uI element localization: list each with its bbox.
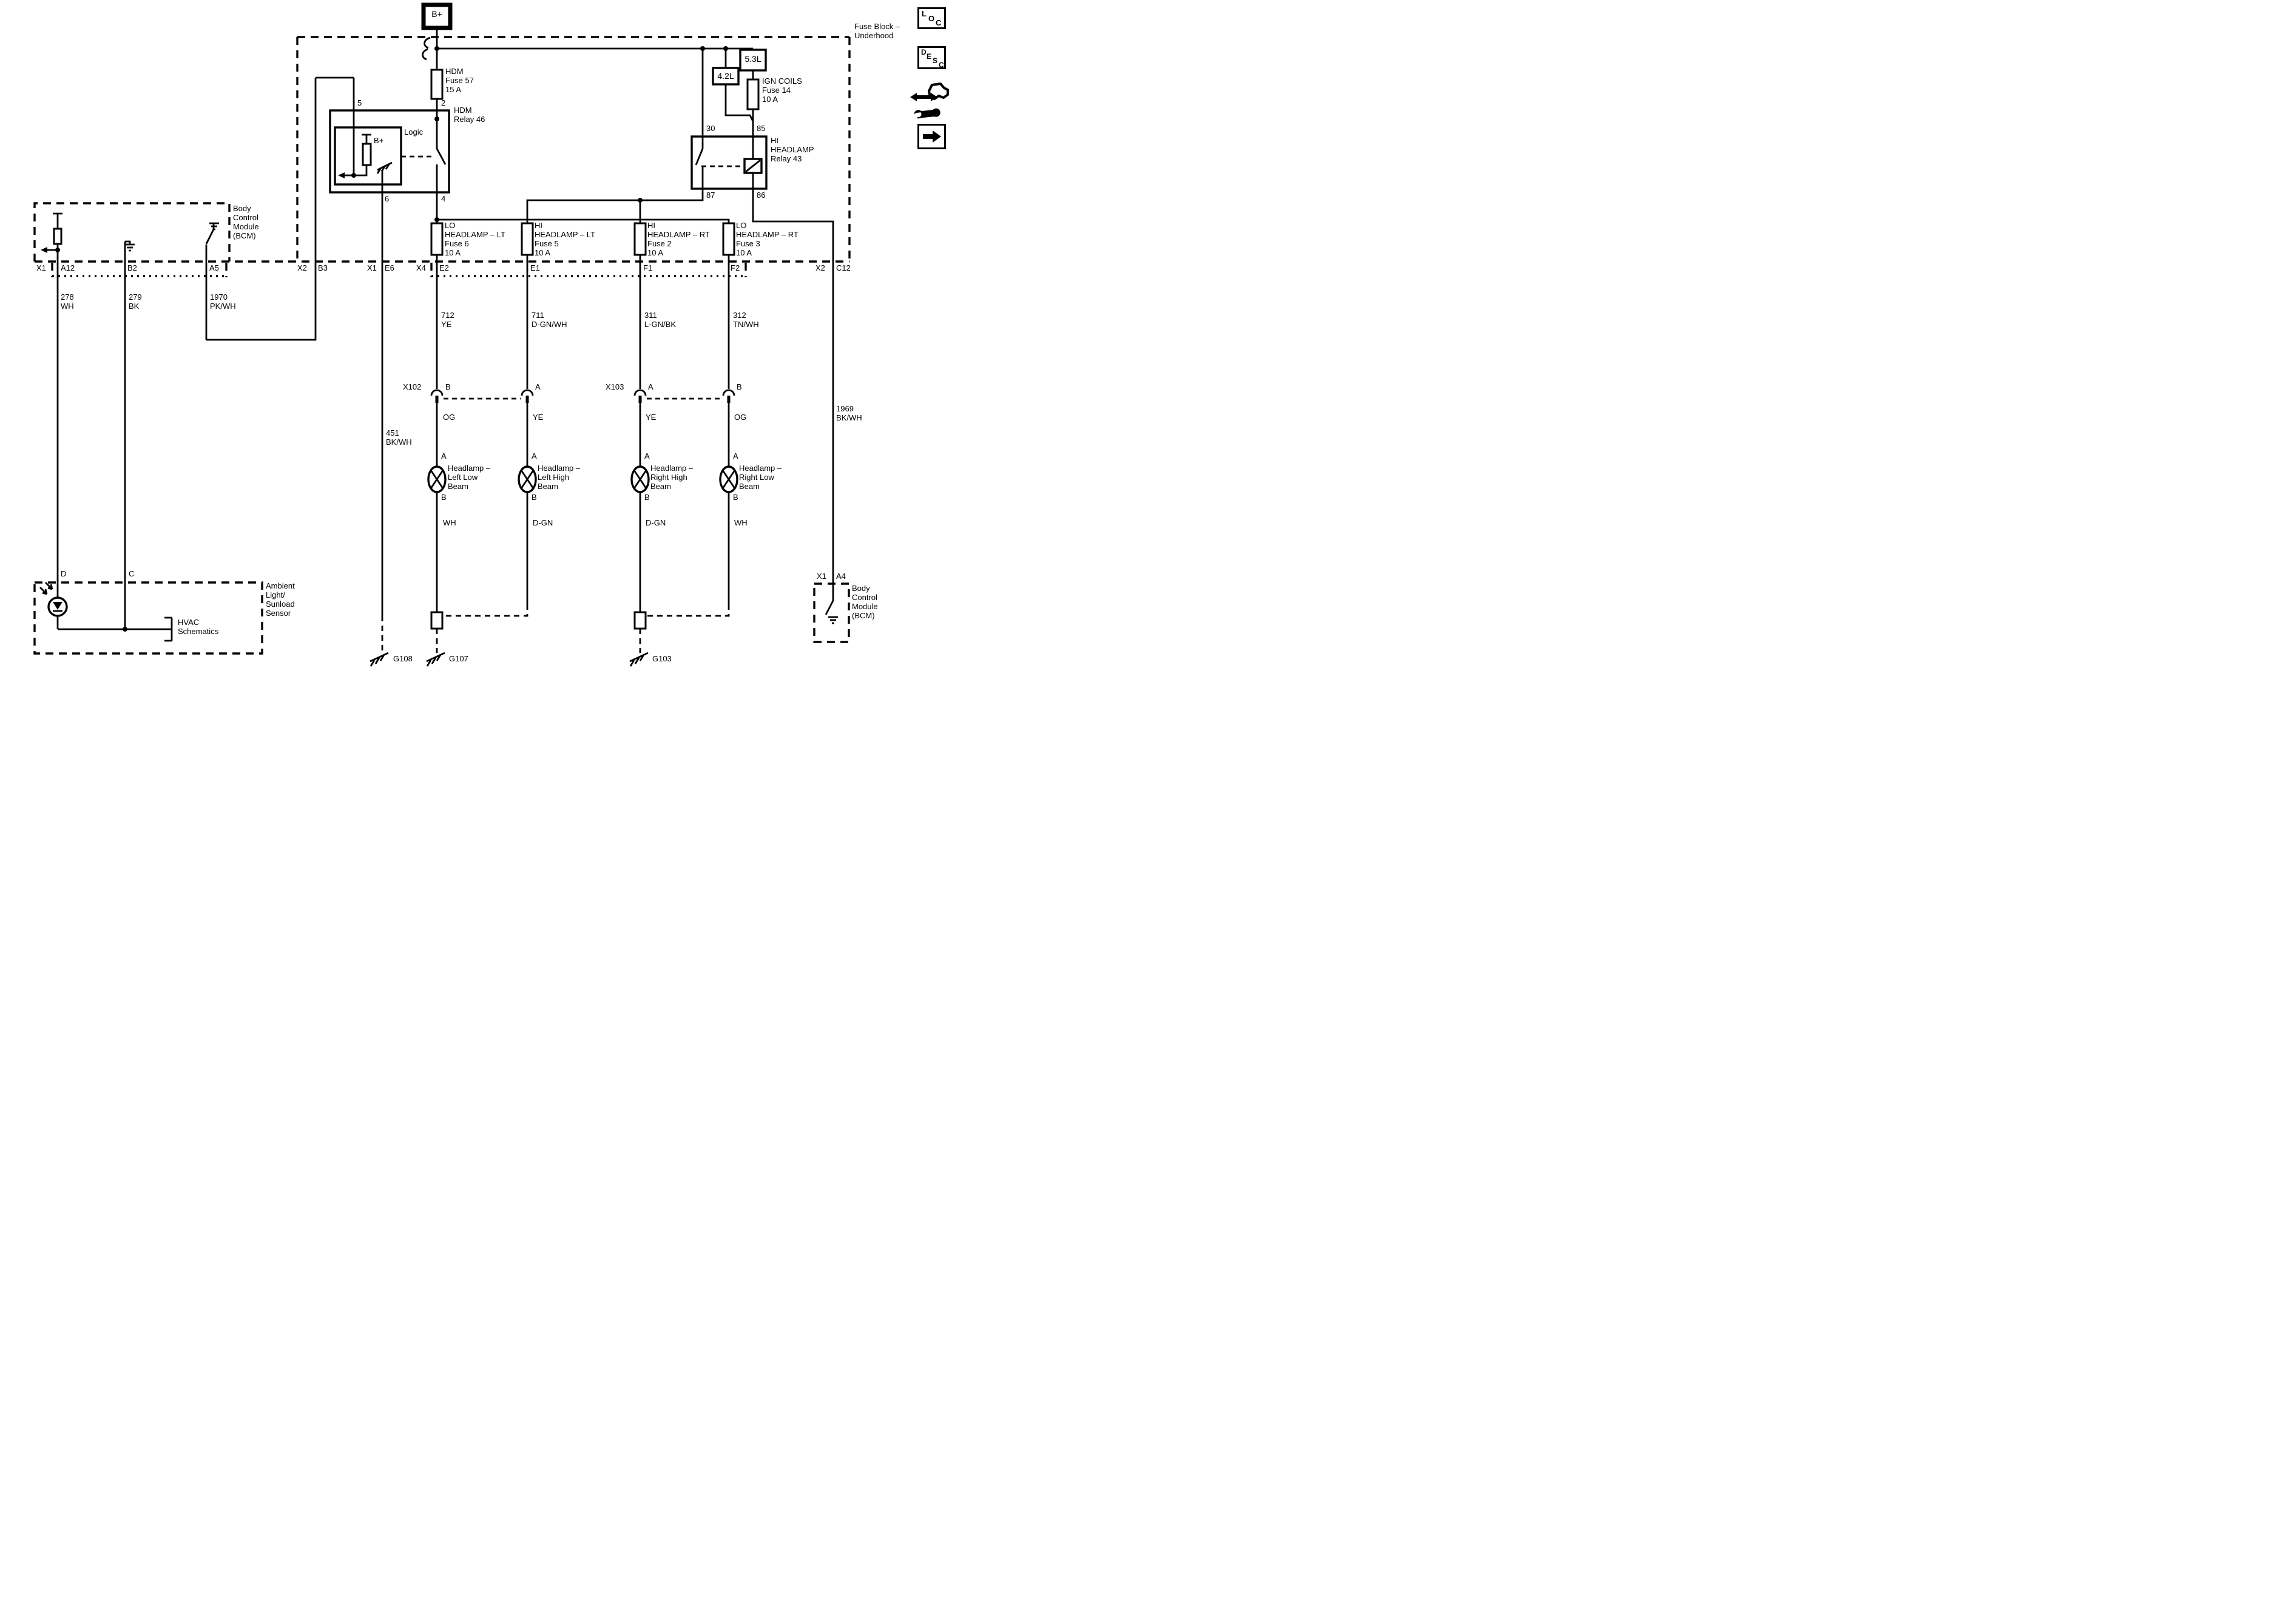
wire-312-tnwh: 312 TN/WH bbox=[733, 311, 759, 329]
relay43-pin85: 85 bbox=[757, 124, 765, 133]
bcm-left-label: Body Control Module (BCM) bbox=[233, 204, 259, 240]
lamp2-wire-color-bottom: D-GN bbox=[533, 518, 553, 527]
ground-g107-icon bbox=[427, 653, 445, 666]
desc-letter-c: C bbox=[939, 61, 944, 69]
x103-pin-a: A bbox=[648, 382, 653, 391]
lamp1-pin-b: B bbox=[441, 493, 447, 502]
x102-pin-b: B bbox=[445, 382, 451, 391]
fuse-hi-lt-label: HI HEADLAMP – LT Fuse 5 10 A bbox=[535, 221, 595, 257]
sensor-pin-d: D bbox=[61, 569, 66, 578]
location-button[interactable]: L O C bbox=[917, 7, 946, 29]
relay-bplus-label: B+ bbox=[374, 136, 383, 145]
bcm-left-box bbox=[35, 203, 229, 262]
bcm-right-internals bbox=[826, 584, 838, 623]
inline-connector-x102 bbox=[431, 390, 533, 403]
lamp4-name: Headlamp – Right Low Beam bbox=[739, 464, 782, 491]
fuse-hi-rt-label: HI HEADLAMP – RT Fuse 2 10 A bbox=[647, 221, 710, 257]
relay46-pin4: 4 bbox=[441, 194, 445, 203]
conn-a5: A5 bbox=[209, 263, 219, 272]
ground-splices bbox=[431, 604, 729, 653]
wire-712-ye: 712 YE bbox=[441, 311, 454, 329]
lamp-circuits bbox=[428, 255, 737, 653]
conn-b3: B3 bbox=[318, 263, 328, 272]
hdm-fuse-label: HDM Fuse 57 15 A bbox=[445, 67, 474, 94]
lamp3-wire-color-top: YE bbox=[646, 413, 656, 422]
bcm-right-a4: A4 bbox=[836, 572, 846, 581]
desc-letter-d: D bbox=[921, 48, 927, 56]
conn-x1-mid: X1 bbox=[367, 263, 377, 272]
wiring-diagram-svg bbox=[0, 0, 951, 670]
conn-a12: A12 bbox=[61, 263, 75, 272]
wire-711-dgnwh: 711 D-GN/WH bbox=[532, 311, 567, 329]
x102-pin-a: A bbox=[535, 382, 541, 391]
description-button[interactable]: D E S C bbox=[917, 46, 946, 69]
right-arrow-icon bbox=[919, 126, 944, 147]
ground-g107-label: G107 bbox=[449, 654, 468, 663]
wire-279-bk: 279 BK bbox=[129, 292, 142, 311]
vehicle-diagnostics-icon[interactable] bbox=[909, 83, 950, 119]
hi-relay-name: HI HEADLAMP Relay 43 bbox=[771, 136, 814, 163]
relay43-pin86: 86 bbox=[757, 191, 765, 200]
next-page-button[interactable] bbox=[917, 124, 946, 149]
inline-connector-x103 bbox=[635, 390, 734, 403]
lamp2-wire-color-top: YE bbox=[533, 413, 543, 422]
ground-g103-label: G103 bbox=[652, 654, 672, 663]
lamp4-pin-b: B bbox=[733, 493, 738, 502]
lamp1-pin-a: A bbox=[441, 451, 447, 461]
wire-1970-pkwh: 1970 PK/WH bbox=[210, 292, 236, 311]
conn-e2: E2 bbox=[439, 263, 449, 272]
conn-e1: E1 bbox=[530, 263, 540, 272]
engine-4-2l-tag: 4.2L bbox=[713, 72, 738, 81]
conn-f2: F2 bbox=[731, 263, 740, 272]
conn-x1-left: X1 bbox=[36, 263, 46, 272]
sensor-pin-c: C bbox=[129, 569, 134, 578]
b-plus-terminal-label: B+ bbox=[424, 10, 450, 19]
conn-x2-right: X2 bbox=[815, 263, 825, 272]
conn-f1: F1 bbox=[643, 263, 652, 272]
lamp3-pin-b: B bbox=[644, 493, 650, 502]
lamp3-wire-color-bottom: D-GN bbox=[646, 518, 666, 527]
loc-letter-c: C bbox=[936, 18, 941, 27]
bcm-right-box bbox=[814, 584, 849, 642]
photodiode-icon bbox=[40, 582, 172, 632]
relay-logic-label: Logic bbox=[404, 127, 423, 137]
fuse-lo-rt-label: LO HEADLAMP – RT Fuse 3 10 A bbox=[736, 221, 799, 257]
x103-pin-b: B bbox=[737, 382, 742, 391]
conn-x4: X4 bbox=[416, 263, 426, 272]
conn-e6: E6 bbox=[385, 263, 394, 272]
ground-g103-icon bbox=[630, 653, 648, 666]
lamp3-name: Headlamp – Right High Beam bbox=[650, 464, 693, 491]
fuse-lo-lt-label: LO HEADLAMP – LT Fuse 6 10 A bbox=[445, 221, 505, 257]
relay46-pin2: 2 bbox=[441, 98, 445, 107]
lamp4-pin-a: A bbox=[733, 451, 738, 461]
loc-letter-l: L bbox=[922, 9, 927, 18]
loc-letter-o: O bbox=[928, 14, 934, 23]
desc-letter-e: E bbox=[927, 52, 931, 61]
relay43-pin30: 30 bbox=[706, 124, 715, 133]
lamp4-wire-color-bottom: WH bbox=[734, 518, 748, 527]
ground-g108-icon bbox=[370, 653, 388, 666]
lamp2-pin-b: B bbox=[532, 493, 537, 502]
ground-g108-label: G108 bbox=[393, 654, 413, 663]
hi-headlamp-relay-43 bbox=[692, 137, 766, 189]
wire-278-wh: 278 WH bbox=[61, 292, 74, 311]
conn-b2: B2 bbox=[127, 263, 137, 272]
hvac-reference-label: HVAC Schematics bbox=[178, 618, 218, 636]
conn-x2-left: X2 bbox=[297, 263, 307, 272]
relay-internal-ground-icon bbox=[377, 163, 392, 174]
x102-label: X102 bbox=[403, 382, 421, 391]
lamp2-pin-a: A bbox=[532, 451, 537, 461]
relay46-pin5: 5 bbox=[357, 98, 362, 107]
conn-c12: C12 bbox=[836, 263, 851, 272]
fuse-block-label: Fuse Block – Underhood bbox=[854, 22, 900, 40]
hdm-relay-name: HDM Relay 46 bbox=[454, 106, 485, 124]
ambient-sensor-box bbox=[35, 582, 262, 653]
lamp4-wire-color-top: OG bbox=[734, 413, 746, 422]
wire-311-lgnbk: 311 L-GN/BK bbox=[644, 311, 676, 329]
wiring-diagram-page: B+ Fuse Block – Underhood HDM Fuse 57 15… bbox=[0, 0, 951, 670]
desc-letter-s: S bbox=[933, 56, 937, 65]
lamp2-name: Headlamp – Left High Beam bbox=[538, 464, 580, 491]
x103-label: X103 bbox=[606, 382, 624, 391]
lamp3-pin-a: A bbox=[644, 451, 650, 461]
bcm-right-label: Body Control Module (BCM) bbox=[852, 584, 878, 620]
wire-451-bkwh: 451 BK/WH bbox=[386, 428, 412, 447]
bcm-right-x1: X1 bbox=[817, 572, 826, 581]
lamp1-wire-color-bottom: WH bbox=[443, 518, 456, 527]
ign-coils-fuse-label: IGN COILS Fuse 14 10 A bbox=[762, 76, 802, 104]
ambient-sensor-label: Ambient Light/ Sunload Sensor bbox=[266, 581, 295, 618]
relay46-pin6: 6 bbox=[385, 194, 389, 203]
hdm-relay-46 bbox=[330, 110, 449, 192]
lamp1-wire-color-top: OG bbox=[443, 413, 455, 422]
relay43-pin87: 87 bbox=[706, 191, 715, 200]
wire-1969-bkwh: 1969 BK/WH bbox=[836, 404, 862, 422]
engine-5-3l-tag: 5.3L bbox=[740, 55, 766, 64]
lamp1-name: Headlamp – Left Low Beam bbox=[448, 464, 490, 491]
